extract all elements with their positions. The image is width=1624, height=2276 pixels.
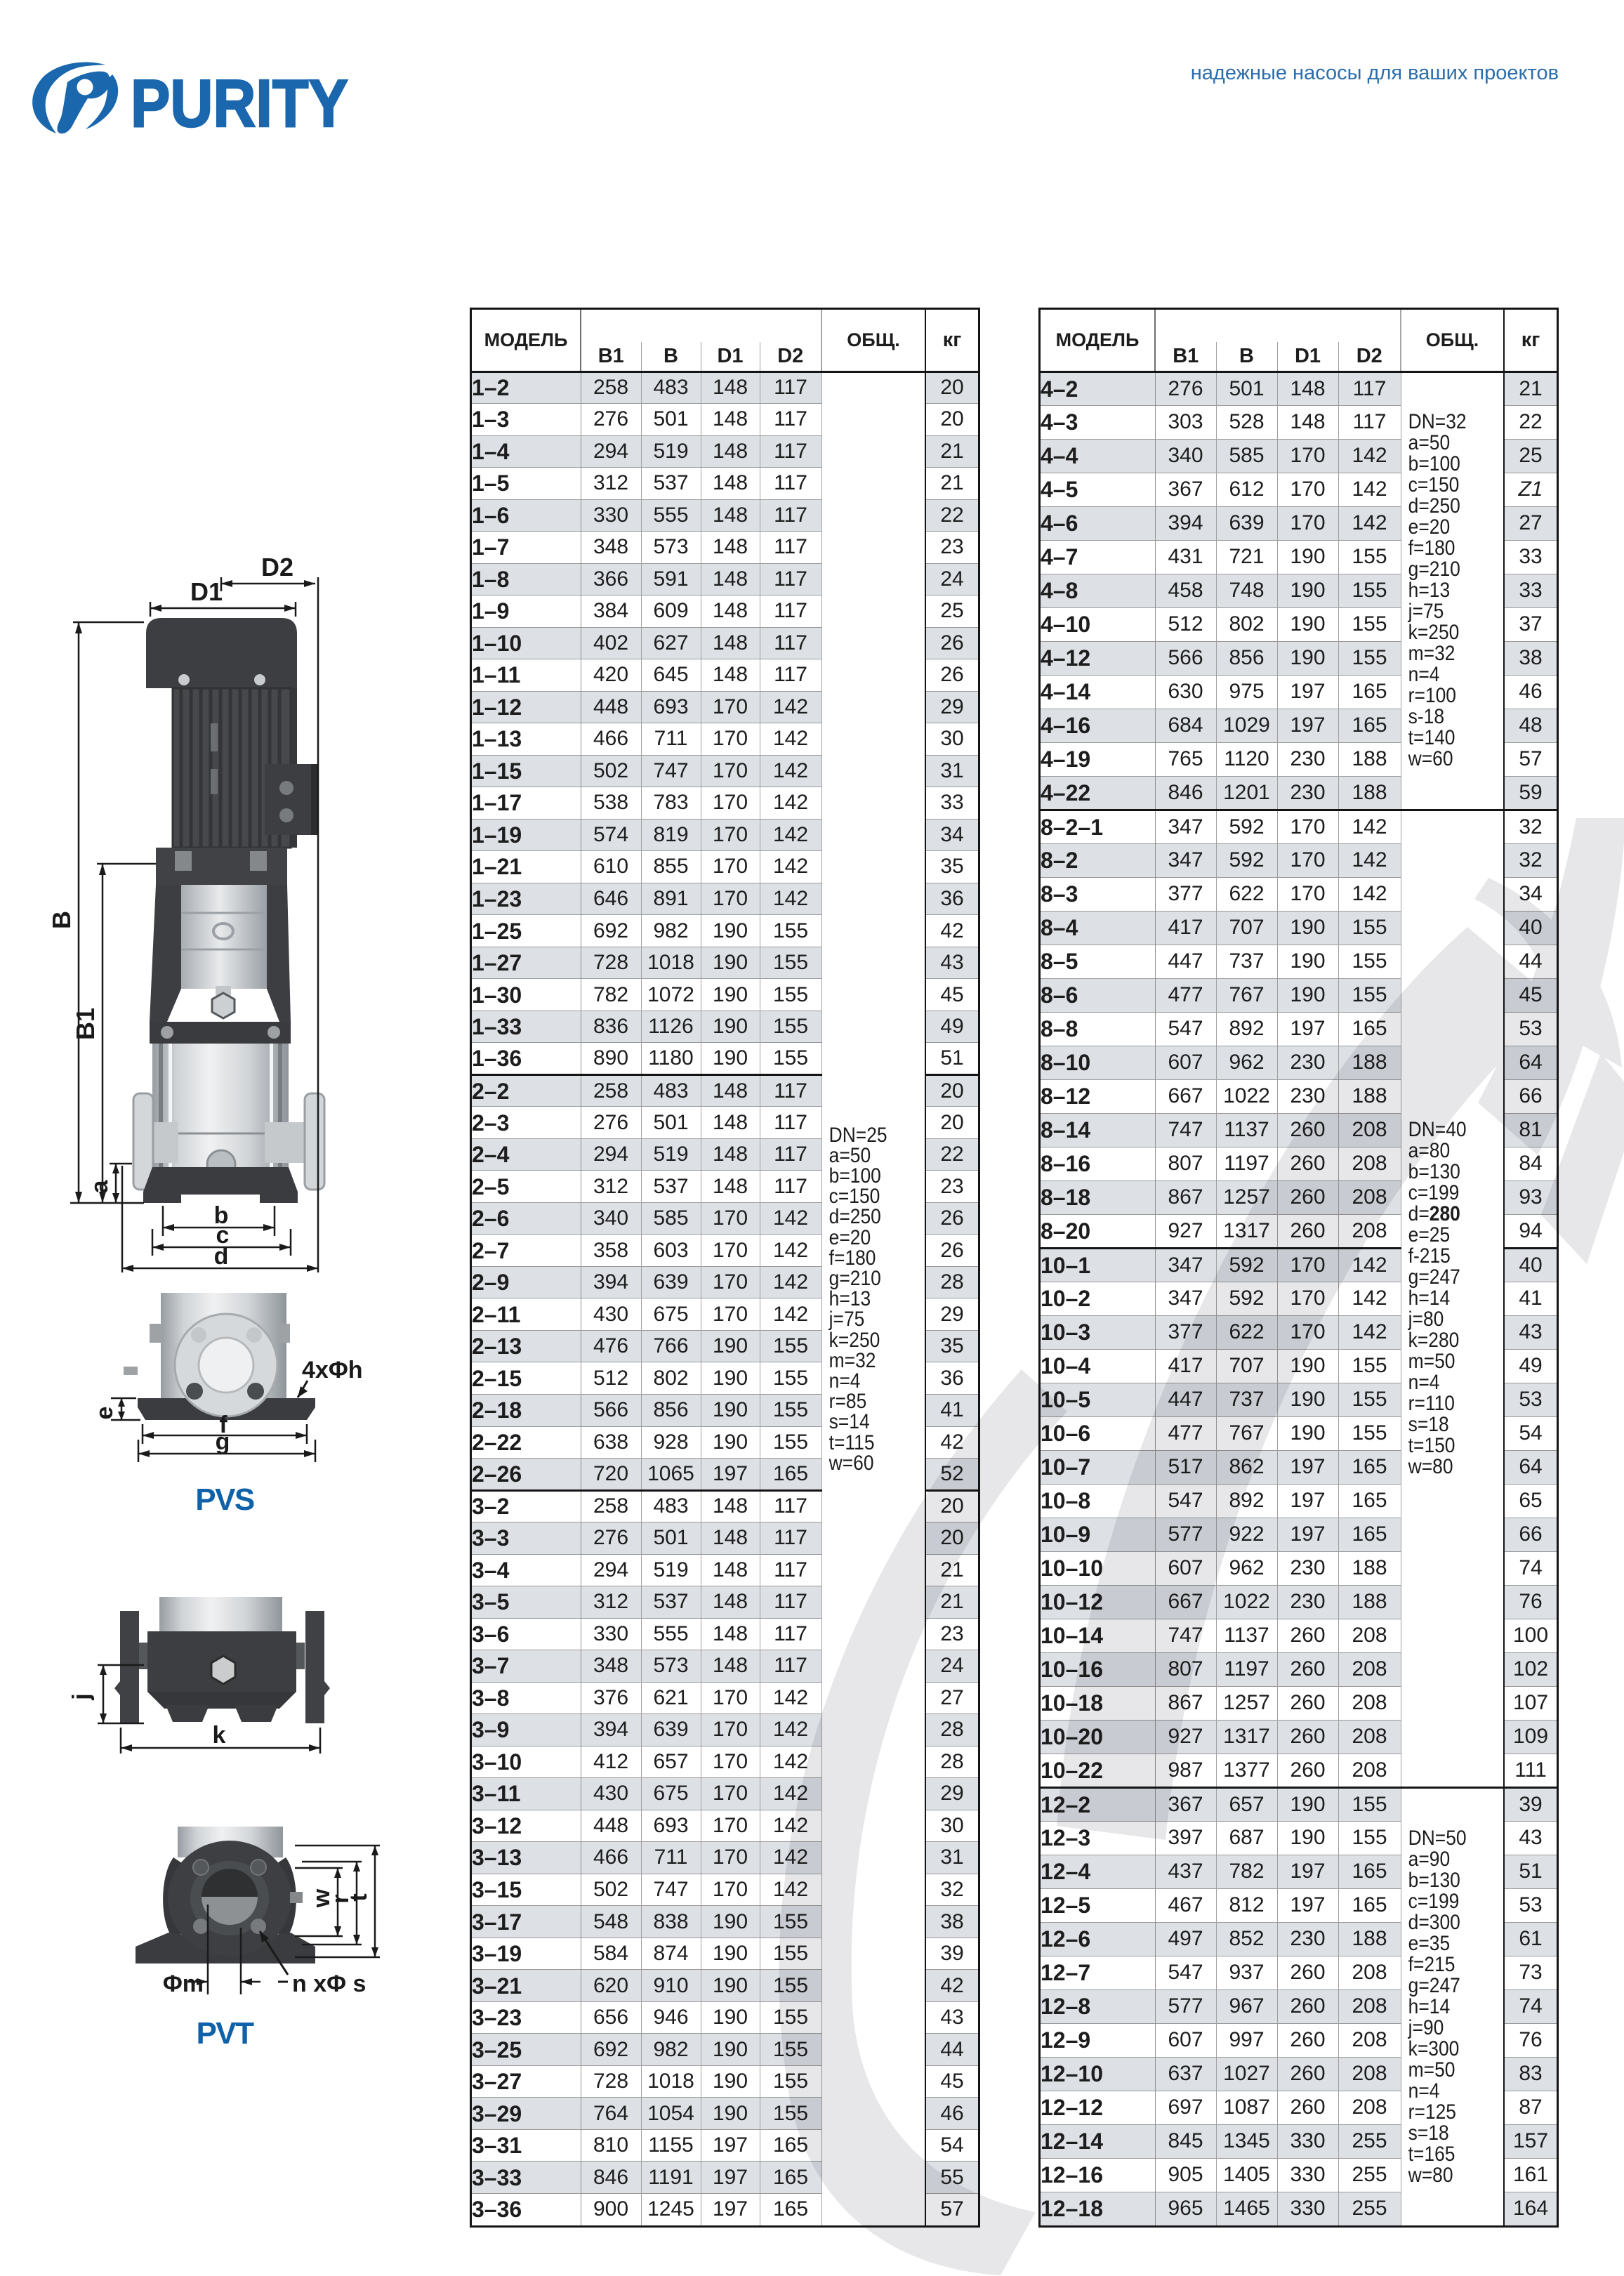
svg-text:PVS: PVS xyxy=(195,1482,254,1517)
svg-text:n xΦ s: n xΦ s xyxy=(292,1971,366,1997)
svg-text:w: w xyxy=(308,1888,335,1908)
svg-text:e: e xyxy=(91,1407,118,1420)
svg-text:D2: D2 xyxy=(261,553,293,581)
svg-text:j: j xyxy=(68,1693,95,1700)
svg-text:a: a xyxy=(86,1179,113,1193)
svg-text:k: k xyxy=(213,1722,226,1749)
svg-text:d: d xyxy=(214,1243,229,1270)
svg-text:B: B xyxy=(47,911,76,929)
svg-text:g: g xyxy=(216,1428,230,1455)
svg-text:B1: B1 xyxy=(71,1008,100,1040)
svg-text:4xΦh: 4xΦh xyxy=(302,1357,363,1383)
svg-text:D1: D1 xyxy=(190,577,223,606)
svg-text:Φm: Φm xyxy=(163,1971,204,1997)
svg-text:PVT: PVT xyxy=(196,2016,254,2051)
